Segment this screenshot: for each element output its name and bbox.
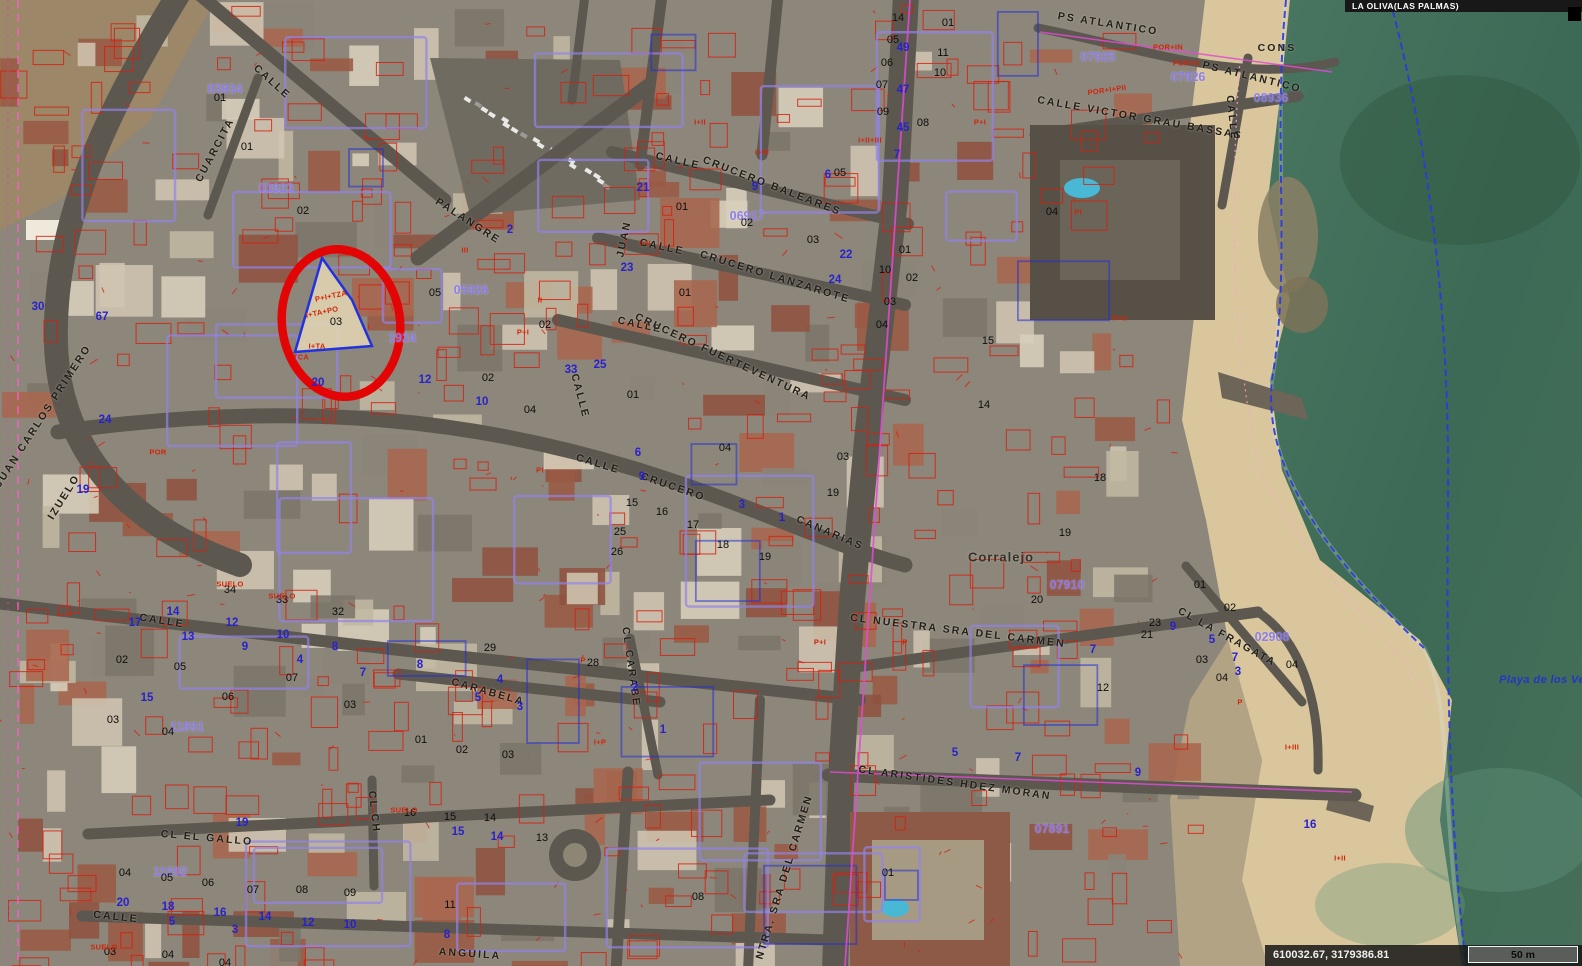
scale-label: 50 m	[1511, 949, 1535, 961]
map-viewport[interactable]: PS ATLANTICOPS ATLANTICOCALLE VICTOR GRA…	[0, 0, 1582, 966]
municipality-label: LA OLIVA(LAS PALMAS)	[1352, 1, 1459, 11]
municipality-bar: LA OLIVA(LAS PALMAS)	[1345, 0, 1582, 12]
corner-box	[1568, 7, 1581, 21]
map-base-art	[0, 0, 1582, 966]
coordinates-value: 610032.67, 3179386.81	[1273, 949, 1389, 961]
scale-bar: 50 m	[1468, 946, 1578, 963]
